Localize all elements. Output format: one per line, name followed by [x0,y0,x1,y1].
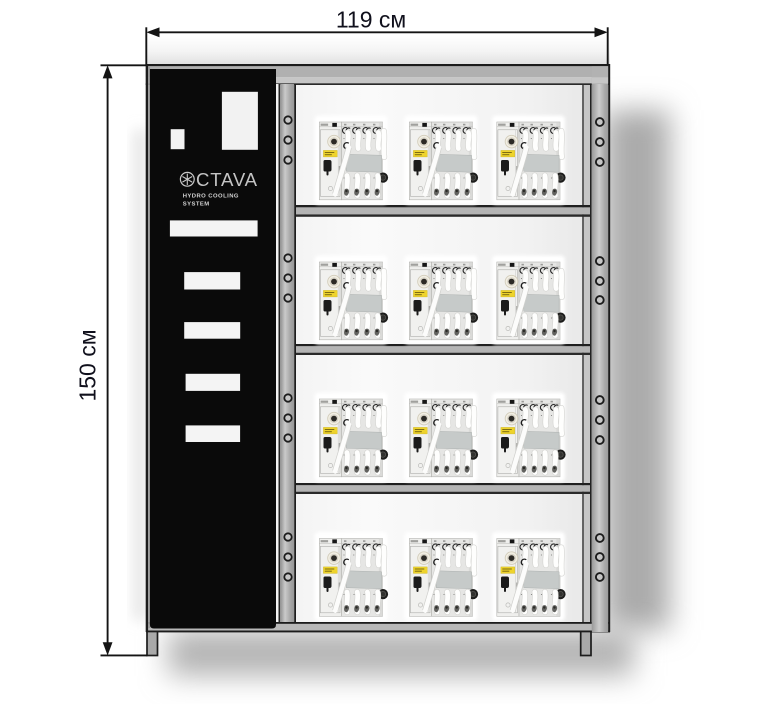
svg-text:SYSTEM: SYSTEM [183,202,210,208]
svg-text:HYDRO COOLING: HYDRO COOLING [183,194,239,200]
svg-text:CTAVA: CTAVA [196,169,258,190]
svg-text:150 см: 150 см [75,329,101,401]
svg-text:119 см: 119 см [336,7,406,33]
